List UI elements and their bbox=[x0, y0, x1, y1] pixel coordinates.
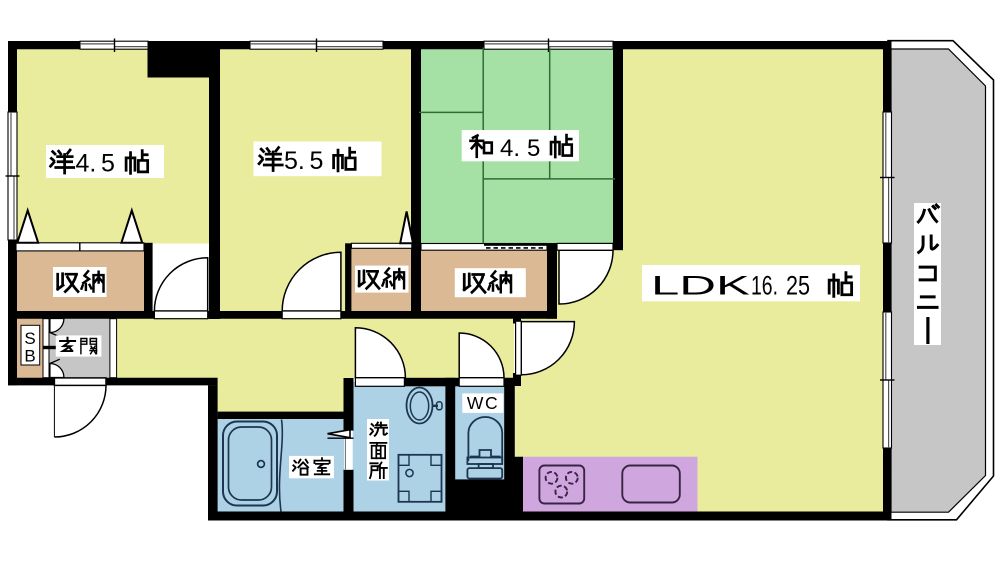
svg-text:5: 5 bbox=[527, 135, 540, 162]
svg-text:5: 5 bbox=[310, 147, 324, 175]
svg-text:WC: WC bbox=[467, 393, 499, 413]
svg-text:B: B bbox=[24, 347, 35, 366]
svg-text:5: 5 bbox=[101, 150, 115, 178]
svg-text:4.: 4. bbox=[500, 135, 520, 162]
svg-text:5.: 5. bbox=[284, 147, 305, 175]
svg-text:LDK: LDK bbox=[651, 271, 750, 301]
svg-text:4.: 4. bbox=[76, 150, 97, 178]
svg-text:25: 25 bbox=[786, 271, 810, 301]
svg-text:16.: 16. bbox=[751, 271, 778, 301]
svg-text:S: S bbox=[24, 329, 35, 348]
